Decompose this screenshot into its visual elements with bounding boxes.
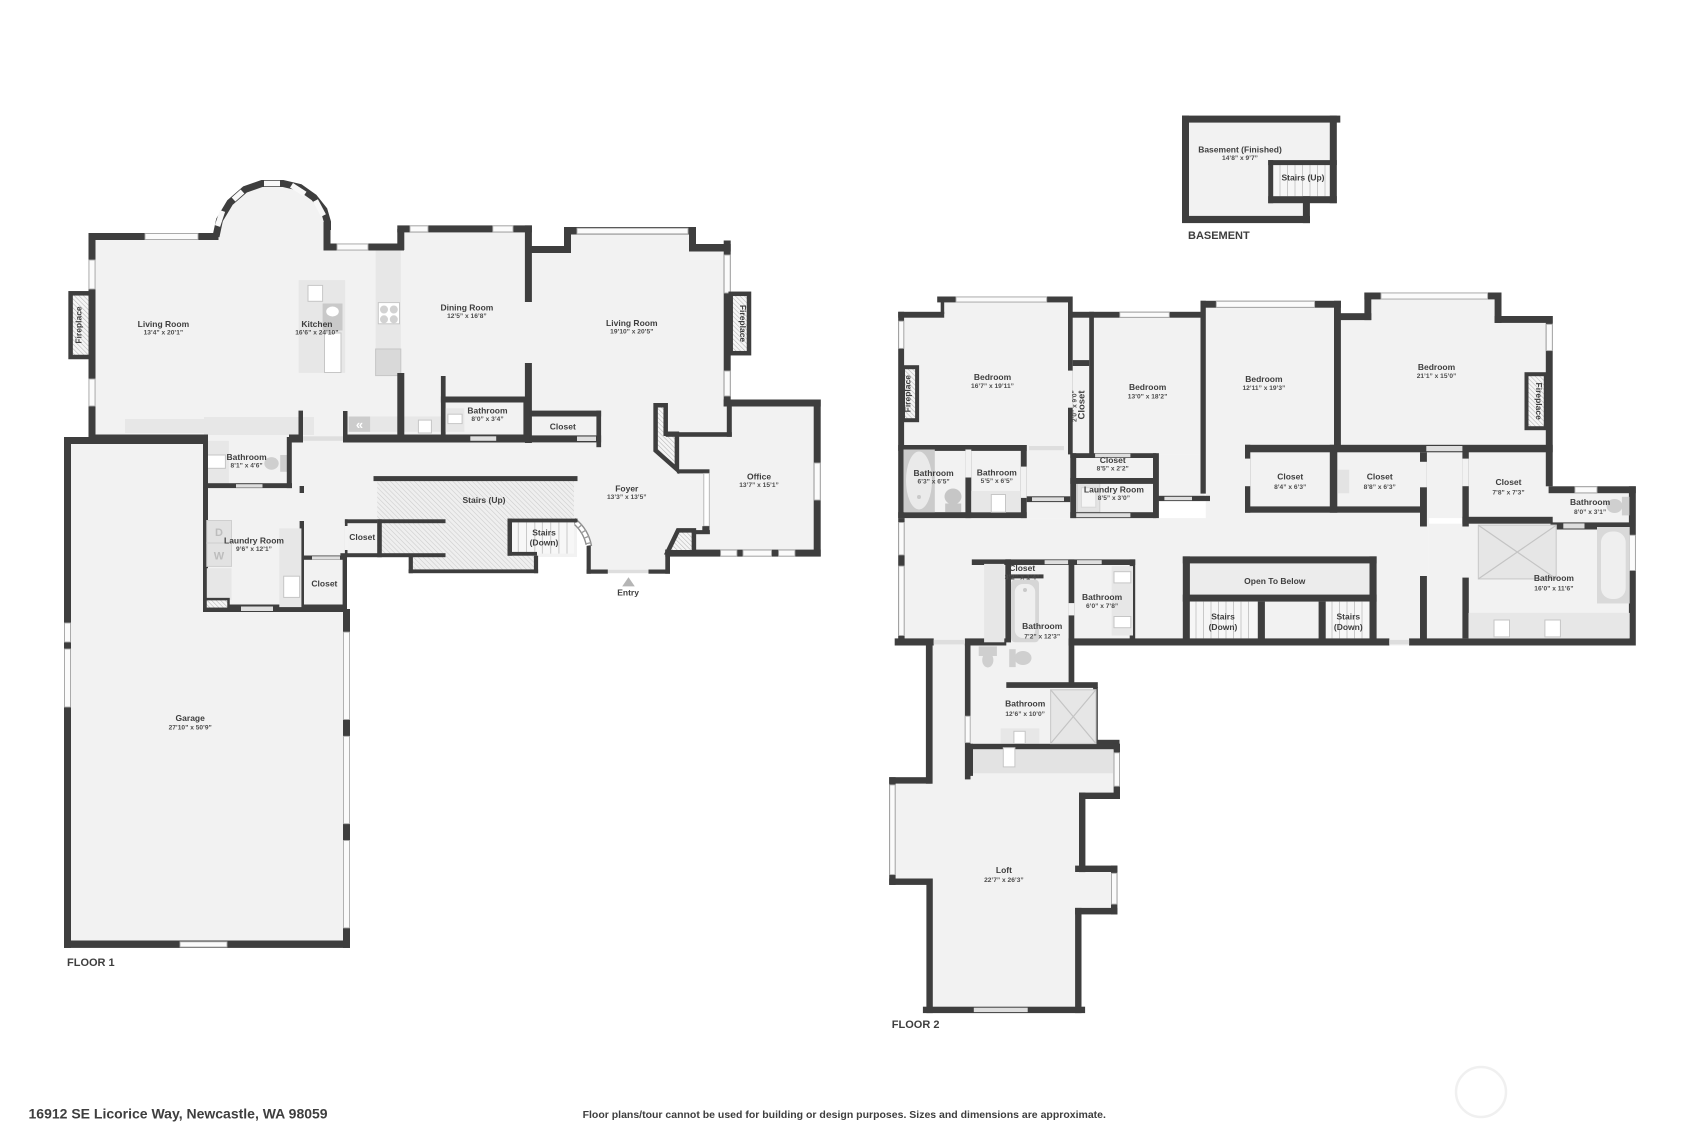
svg-text:Floor plans/tour cannot be use: Floor plans/tour cannot be used for buil… xyxy=(583,1109,1106,1121)
svg-text:3’2” x 1’4”: 3’2” x 1’4” xyxy=(1005,573,1041,582)
svg-text:6’3” x 6’5”: 6’3” x 6’5” xyxy=(917,479,949,486)
svg-text:8’1” x 4’6”: 8’1” x 4’6” xyxy=(230,463,262,470)
svg-text:5’5” x 6’5”: 5’5” x 6’5” xyxy=(981,478,1013,485)
svg-text:22’7” x 26’3”: 22’7” x 26’3” xyxy=(984,877,1024,884)
svg-text:Fireplace: Fireplace xyxy=(1534,383,1544,421)
svg-text:Foyer: Foyer xyxy=(615,483,639,493)
svg-text:(Down): (Down) xyxy=(530,537,559,547)
svg-text:7’2” x 12’3”: 7’2” x 12’3” xyxy=(1024,634,1060,641)
svg-text:FLOOR 2: FLOOR 2 xyxy=(892,1019,940,1031)
svg-text:Basement (Finished): Basement (Finished) xyxy=(1198,144,1282,154)
svg-text:7’8” x 7’3”: 7’8” x 7’3” xyxy=(1492,490,1524,497)
svg-text:Bathroom: Bathroom xyxy=(1022,621,1063,631)
svg-text:8’8” x 6’3”: 8’8” x 6’3” xyxy=(1364,484,1396,491)
svg-text:Bathroom: Bathroom xyxy=(914,468,955,478)
svg-text:16912 SE Licorice Way, Newcast: 16912 SE Licorice Way, Newcastle, WA 980… xyxy=(29,1106,328,1122)
svg-text:Laundry Room: Laundry Room xyxy=(1084,484,1144,494)
svg-text:Closet: Closet xyxy=(1009,563,1035,573)
svg-text:FLOOR 1: FLOOR 1 xyxy=(67,957,115,969)
svg-text:21’1” x 15’0”: 21’1” x 15’0” xyxy=(1417,373,1457,380)
svg-text:13’3” x 13’5”: 13’3” x 13’5” xyxy=(607,494,647,501)
svg-text:«: « xyxy=(356,417,363,432)
svg-text:Stairs (Up): Stairs (Up) xyxy=(463,495,506,505)
svg-text:BASEMENT: BASEMENT xyxy=(1188,230,1250,242)
svg-text:14’8” x 9’7”: 14’8” x 9’7” xyxy=(1222,155,1258,162)
svg-text:Living Room: Living Room xyxy=(138,319,190,329)
svg-text:Laundry Room: Laundry Room xyxy=(224,536,284,546)
svg-text:Bedroom: Bedroom xyxy=(1129,382,1167,392)
svg-text:Bedroom: Bedroom xyxy=(974,372,1012,382)
svg-text:Stairs (Up): Stairs (Up) xyxy=(1282,173,1325,183)
svg-text:Bathroom: Bathroom xyxy=(227,452,268,462)
svg-text:Dining Room: Dining Room xyxy=(440,302,493,312)
svg-text:Kitchen: Kitchen xyxy=(301,319,332,329)
svg-text:(Down): (Down) xyxy=(1334,622,1363,632)
svg-text:8’4” x 6’3”: 8’4” x 6’3” xyxy=(1274,484,1306,491)
svg-text:Entry: Entry xyxy=(617,588,639,598)
svg-text:Closet: Closet xyxy=(349,532,375,542)
svg-text:16’0” x 11’6”: 16’0” x 11’6” xyxy=(1534,585,1573,592)
svg-text:Stairs: Stairs xyxy=(1336,611,1360,621)
svg-text:Loft: Loft xyxy=(996,865,1012,875)
svg-text:Bathroom: Bathroom xyxy=(1570,497,1611,507)
svg-text:Bedroom: Bedroom xyxy=(1245,374,1283,384)
svg-text:Closet: Closet xyxy=(311,579,337,589)
svg-text:16’6” x 24’10”: 16’6” x 24’10” xyxy=(295,330,338,337)
svg-text:Stairs: Stairs xyxy=(532,528,556,538)
svg-text:Closet: Closet xyxy=(1496,477,1522,487)
svg-text:12’5” x 16’8”: 12’5” x 16’8” xyxy=(447,313,487,320)
svg-text:Fireplace: Fireplace xyxy=(738,305,748,343)
svg-text:Closet: Closet xyxy=(1277,471,1303,481)
svg-text:12’11” x 19’3”: 12’11” x 19’3” xyxy=(1242,385,1285,392)
svg-text:Bathroom: Bathroom xyxy=(1082,592,1123,602)
svg-text:Bedroom: Bedroom xyxy=(1418,362,1456,372)
svg-text:27’10” x 50’9”: 27’10” x 50’9” xyxy=(169,724,212,731)
svg-text:Stairs: Stairs xyxy=(1211,611,1235,621)
svg-text:8’5” x 2’2”: 8’5” x 2’2” xyxy=(1097,466,1129,473)
svg-text:12’6” x 10’0”: 12’6” x 10’0” xyxy=(1005,711,1045,718)
svg-text:Bathroom: Bathroom xyxy=(467,406,508,416)
svg-text:Bathroom: Bathroom xyxy=(1005,699,1046,709)
svg-text:2’0” x 9’0”: 2’0” x 9’0” xyxy=(1071,390,1078,422)
svg-text:Closet: Closet xyxy=(1367,471,1393,481)
svg-text:Closet: Closet xyxy=(550,421,576,431)
svg-text:13’4” x 20’1”: 13’4” x 20’1” xyxy=(144,329,184,336)
svg-text:D: D xyxy=(215,527,223,539)
svg-text:8’0” x 3’4”: 8’0” x 3’4” xyxy=(471,416,503,423)
svg-text:Closet: Closet xyxy=(1100,455,1126,465)
svg-text:13’7” x 15’1”: 13’7” x 15’1” xyxy=(739,482,779,489)
svg-text:9’6” x 12’1”: 9’6” x 12’1” xyxy=(236,546,272,553)
svg-text:Office: Office xyxy=(747,472,771,482)
svg-text:Bathroom: Bathroom xyxy=(1534,573,1575,583)
svg-text:Fireplace: Fireplace xyxy=(902,375,912,413)
svg-text:16’7” x 19’11”: 16’7” x 19’11” xyxy=(971,383,1014,390)
svg-text:Bathroom: Bathroom xyxy=(977,468,1018,478)
svg-text:8’0” x 3’1”: 8’0” x 3’1” xyxy=(1574,509,1606,516)
svg-text:Open To Below: Open To Below xyxy=(1244,576,1306,586)
svg-text:Garage: Garage xyxy=(176,713,206,723)
svg-text:13’0” x 18’2”: 13’0” x 18’2” xyxy=(1128,393,1168,400)
svg-text:Fireplace: Fireplace xyxy=(74,306,84,344)
svg-text:W: W xyxy=(214,551,225,563)
svg-text:6’0” x 7’8”: 6’0” x 7’8” xyxy=(1086,603,1118,610)
svg-text:(Down): (Down) xyxy=(1209,622,1238,632)
svg-text:8’5” x 3’0”: 8’5” x 3’0” xyxy=(1098,495,1130,502)
svg-text:Living Room: Living Room xyxy=(606,318,658,328)
svg-text:19’10” x 20’5”: 19’10” x 20’5” xyxy=(610,329,653,336)
